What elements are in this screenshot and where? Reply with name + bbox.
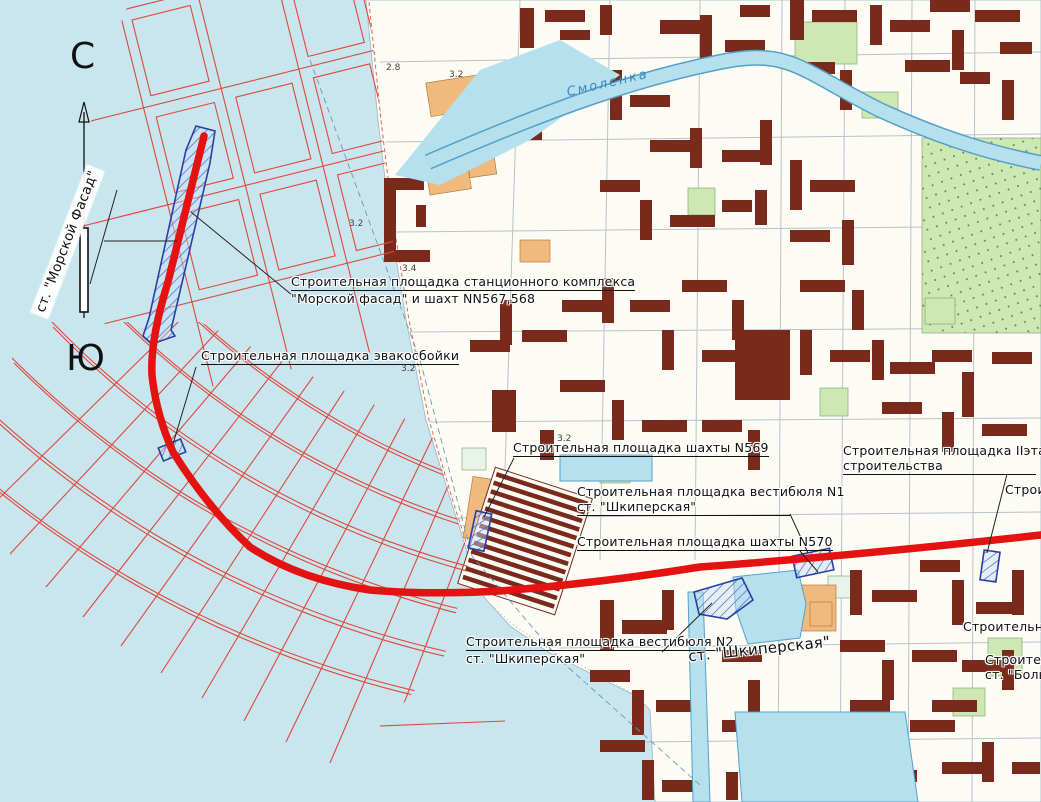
spot-height: 3.2 <box>557 434 571 444</box>
spot-height: 2.8 <box>386 63 400 73</box>
label-site-station-complex: Строительная площадка станционного компл… <box>291 274 635 306</box>
label-edge-partial-2: Строительная <box>963 619 1041 634</box>
spot-height: 3.2 <box>449 70 463 80</box>
map-graphics <box>0 0 1041 802</box>
harbor-basin <box>735 712 918 802</box>
label-edge-partial-3: Строитель <box>985 652 1041 667</box>
compass-south-label: Ю <box>66 338 105 379</box>
pool <box>560 455 652 481</box>
spot-height: 3.2 <box>349 219 363 229</box>
label-edge-partial-4: ст. "Больш <box>985 667 1041 682</box>
pier-line <box>380 721 505 726</box>
label-site-shaft-570: Строительная площадка шахты N570 <box>577 534 833 551</box>
compass-north-label: С <box>70 36 95 77</box>
label-site-evac: Строительная площадка эвакосбойки <box>201 348 459 365</box>
label-site-stage-2: Строительная площадка IIэтапа строительс… <box>843 443 1036 475</box>
spot-height: 3.2 <box>401 364 415 374</box>
label-line: Строительная площадка станционного компл… <box>291 274 635 291</box>
label-site-vestibule-1: Строительная площадка вестибюля N1 ст. "… <box>577 484 790 516</box>
label-site-shaft-569: Строительная площадка шахты N569 <box>513 440 769 457</box>
marker-stage-2 <box>980 550 1000 582</box>
map-canvas: С Ю Смоленка ст. "Морской Фасад" Строите… <box>0 0 1041 802</box>
label-edge-partial-1: Строи <box>1005 482 1041 497</box>
spot-height: 3.4 <box>402 264 416 274</box>
label-line: "Морской фасад" и шахт NN567,568 <box>291 291 535 306</box>
